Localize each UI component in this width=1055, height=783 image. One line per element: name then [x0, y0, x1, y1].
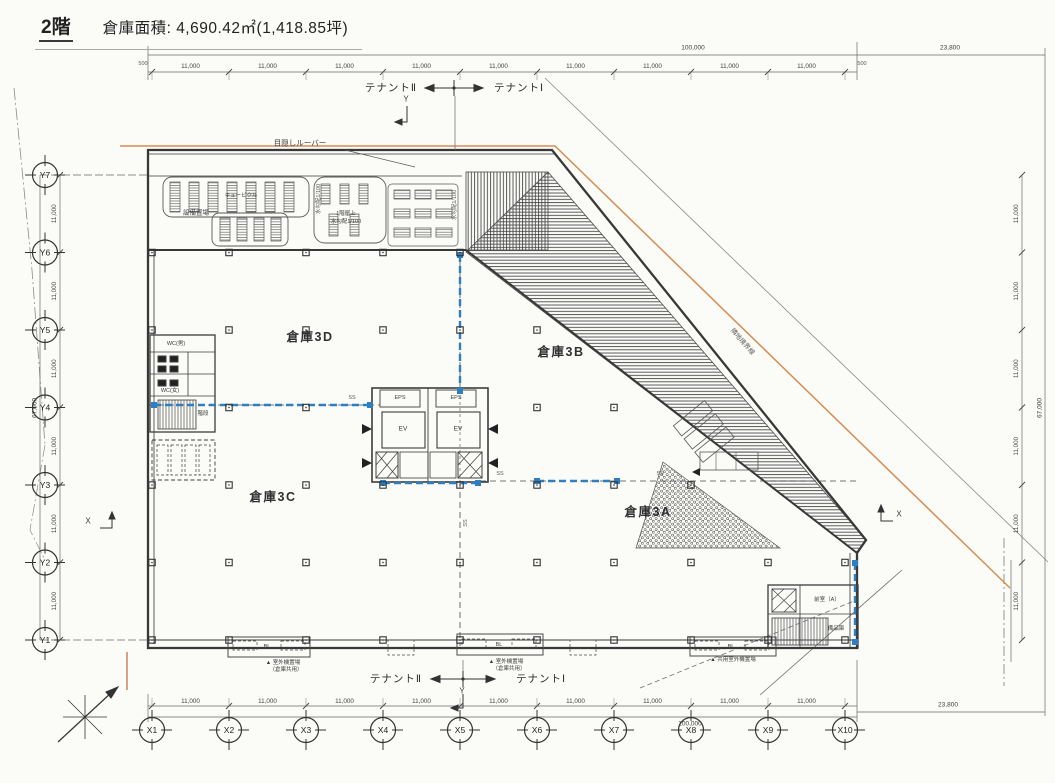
- bay-dim-label: 11,000: [720, 698, 739, 705]
- svg-text:Y4: Y4: [40, 403, 51, 413]
- warehouse-3b-label: 倉庫3B: [538, 345, 585, 359]
- bay-dim-label: 11,000: [335, 63, 354, 70]
- grid-bubble-x2: X2: [209, 710, 249, 750]
- bay-dim-label: 11,000: [797, 698, 816, 705]
- grid-bubble-y5: Y5: [25, 310, 65, 350]
- cubicle-note: キュービクル: [225, 193, 258, 199]
- wc-male-label: WC(男): [167, 341, 185, 347]
- outdoor-unit-note-1b: （倉庫共用）: [269, 667, 302, 673]
- drawing-header: 2階 倉庫面積: 4,690.42㎡(1,418.85坪): [35, 10, 362, 50]
- bay-dim-label: 11,000: [181, 698, 200, 705]
- bay-dim-label: 11,000: [720, 63, 739, 70]
- louver-note: 目隠しルーバー: [274, 140, 326, 149]
- equipment-unit: [436, 228, 452, 237]
- equipment-yard-note: 設備置場: [183, 209, 209, 216]
- bay-dim-label: 11,000: [51, 591, 58, 610]
- svg-text:X2: X2: [224, 725, 235, 735]
- bay-dim-label: 11,000: [643, 63, 662, 70]
- equipment-unit: [220, 218, 230, 241]
- equipment-unit: [394, 209, 410, 218]
- equipment-unit: [189, 182, 199, 212]
- equipment-unit: [237, 218, 247, 241]
- total-width-dim-top: 100,000: [681, 44, 705, 51]
- grid-bubble-x3: X3: [286, 710, 326, 750]
- equipment-store-label: 備品庫: [828, 626, 845, 632]
- left-core-block: [150, 335, 215, 480]
- tenant2-label-bottom: テナントⅡ: [370, 673, 422, 685]
- svg-text:X6: X6: [532, 725, 543, 735]
- tenant-arrows-top: [425, 80, 483, 96]
- bay-dim-label: 11,000: [489, 63, 508, 70]
- svg-text:X7: X7: [609, 725, 620, 735]
- shared-outdoor-unit-note: ▲ 共用室外機置場: [710, 657, 755, 663]
- warehouse-area-label: 倉庫面積: 4,690.42㎡(1,418.85坪): [103, 16, 349, 38]
- equipment-unit: [321, 184, 330, 204]
- grid-bubble-x5: X5: [440, 710, 480, 750]
- grid-bubble-y7: Y7: [25, 155, 65, 195]
- bay-dim-label: 11,000: [51, 436, 58, 455]
- axis-y-bottom: Y: [459, 686, 464, 695]
- bl-label-1: BL: [264, 644, 271, 650]
- equipment-unit: [340, 184, 349, 204]
- slope-note-1: 水勾配1/100: [316, 184, 322, 214]
- grid-bubble-y6: Y6: [25, 233, 65, 273]
- plan-svg: X1X2X3X4X5X6X7X8X9X10Y7Y6Y5Y4Y3Y2Y1 11,0…: [0, 0, 1055, 783]
- grid-bubble-x1: X1: [132, 710, 172, 750]
- outdoor-unit-note-2a: ▲ 室外機置場: [489, 659, 523, 665]
- svg-text:X3: X3: [301, 725, 312, 735]
- equipment-unit: [265, 182, 275, 212]
- tenant1-label-top: テナントⅠ: [494, 82, 544, 94]
- bl-label-2: BL: [496, 642, 503, 648]
- bay-dim-label: 11,000: [1013, 591, 1020, 610]
- svg-text:X9: X9: [763, 725, 774, 735]
- equipment-unit: [170, 182, 180, 212]
- floor-label: 2階: [39, 12, 73, 42]
- bay-dim-label: 11,000: [1013, 204, 1020, 223]
- axis-x-right: X: [896, 509, 901, 518]
- bay-dim-label: 11,000: [412, 63, 431, 70]
- elevator-label-right: EV: [454, 425, 463, 432]
- grid-bubble-x8: X8: [671, 710, 711, 750]
- total-width-dim-bottom: 100,000: [678, 720, 702, 727]
- warehouse-3d-label: 倉庫3D: [287, 330, 334, 344]
- warehouse-3c-label: 倉庫3C: [250, 490, 297, 504]
- equipment-unit: [415, 190, 431, 199]
- equipment-unit: [359, 184, 368, 204]
- tenant-arrows-bottom: [431, 671, 495, 687]
- equipment-unit: [415, 228, 431, 237]
- equipment-unit: [436, 190, 452, 199]
- ss-label-3: SS: [656, 471, 663, 477]
- half-dim-top-left: 500: [138, 61, 147, 67]
- north-arrow: [58, 687, 118, 742]
- equipment-unit: [394, 190, 410, 199]
- svg-text:X10: X10: [837, 725, 852, 735]
- bay-dim-label: 11,000: [797, 63, 816, 70]
- roof-equipment-zones: [163, 150, 458, 246]
- wc-female-label: WC(女): [161, 388, 179, 394]
- equipment-unit: [415, 209, 431, 218]
- svg-text:Y6: Y6: [40, 248, 51, 258]
- floorplan-page: X1X2X3X4X5X6X7X8X9X10Y7Y6Y5Y4Y3Y2Y1 11,0…: [0, 0, 1055, 783]
- ext-dim-bottom: 23,800: [938, 701, 958, 708]
- bay-dim-label: 11,000: [335, 698, 354, 705]
- grid-bubble-x9: X9: [748, 710, 788, 750]
- ss-label-1: SS: [348, 395, 355, 401]
- equipment-unit: [394, 228, 410, 237]
- bay-dim-label: 11,000: [51, 514, 58, 533]
- outdoor-unit-note-1a: ▲ 室外機置場: [266, 660, 300, 666]
- bay-dim-label: 11,000: [181, 63, 200, 70]
- site-boundary-lines: [14, 78, 1048, 695]
- bay-dim-label: 11,000: [489, 698, 508, 705]
- grid-bubble-x7: X7: [594, 710, 634, 750]
- bay-dim-label: 11,000: [51, 359, 58, 378]
- equipment-unit: [208, 182, 218, 212]
- roof-note-line1: 1階屋上: [336, 211, 356, 217]
- bay-dim-label: 11,000: [566, 698, 585, 705]
- bay-dim-label: 11,000: [51, 281, 58, 300]
- svg-text:Y5: Y5: [40, 325, 51, 335]
- tenant1-label-bottom: テナントⅠ: [516, 673, 566, 685]
- svg-text:Y3: Y3: [40, 480, 51, 490]
- core-block: [362, 388, 498, 482]
- anteroom-label: 前室（A）: [814, 597, 840, 603]
- bay-dim-label: 11,000: [1013, 281, 1020, 300]
- total-height-dim-right: 67,000: [1036, 398, 1043, 418]
- bay-dim-label: 11,000: [51, 204, 58, 223]
- slope-note-2: 水勾配1/100: [452, 190, 458, 220]
- eps-label-right: EPS: [450, 395, 461, 401]
- ext-dim-top: 23,800: [940, 44, 960, 51]
- grid-bubble-y3: Y3: [25, 465, 65, 505]
- outdoor-unit-note-2b: （倉庫共用）: [492, 666, 525, 672]
- svg-text:X5: X5: [455, 725, 466, 735]
- svg-text:Y2: Y2: [40, 558, 51, 568]
- grid-bubble-x6: X6: [517, 710, 557, 750]
- axis-y-top: Y: [403, 94, 408, 103]
- half-dim-top-right: 500: [857, 61, 866, 67]
- equipment-unit: [271, 218, 281, 241]
- svg-text:X4: X4: [378, 725, 389, 735]
- grid-bubble-x10: X10: [825, 710, 865, 750]
- axis-x-left: X: [85, 516, 90, 525]
- equipment-unit: [284, 182, 294, 212]
- stair-label-left: 階段: [197, 411, 208, 417]
- grid-bubble-x4: X4: [363, 710, 403, 750]
- grid-bubble-y2: Y2: [25, 543, 65, 583]
- warehouse-3a-label: 倉庫3A: [625, 505, 672, 519]
- bay-dim-label: 11,000: [643, 698, 662, 705]
- bay-dim-label: 11,000: [412, 698, 431, 705]
- ss-label-4: SS: [463, 519, 469, 526]
- bay-dim-label: 11,000: [258, 698, 277, 705]
- total-height-dim-left: 67,000: [31, 398, 38, 418]
- bay-dim-label: 11,000: [566, 63, 585, 70]
- generated-dimension-labels: 11,00011,00011,00011,00011,00011,00011,0…: [51, 63, 1025, 709]
- bottom-right-block: [768, 585, 858, 648]
- svg-text:Y1: Y1: [40, 635, 51, 645]
- bay-dim-label: 11,000: [1013, 359, 1020, 378]
- bl-label-3: BL: [728, 644, 735, 650]
- bay-dim-label: 11,000: [1013, 436, 1020, 455]
- tenant2-label-top: テナントⅡ: [365, 82, 417, 94]
- svg-text:Y7: Y7: [40, 170, 51, 180]
- dimension-lines: [40, 42, 1045, 722]
- grid-bubble-y1: Y1: [25, 620, 65, 660]
- elevator-label-left: EV: [399, 425, 408, 432]
- bay-dim-label: 11,000: [258, 63, 277, 70]
- svg-text:X1: X1: [147, 725, 158, 735]
- eps-label-left: EPS: [394, 395, 405, 401]
- roof-note-line2: 水勾配1/100: [331, 219, 361, 225]
- equipment-unit: [436, 209, 452, 218]
- ss-label-2: SS: [496, 471, 503, 477]
- equipment-unit: [254, 218, 264, 241]
- bay-dim-label: 11,000: [1013, 514, 1020, 533]
